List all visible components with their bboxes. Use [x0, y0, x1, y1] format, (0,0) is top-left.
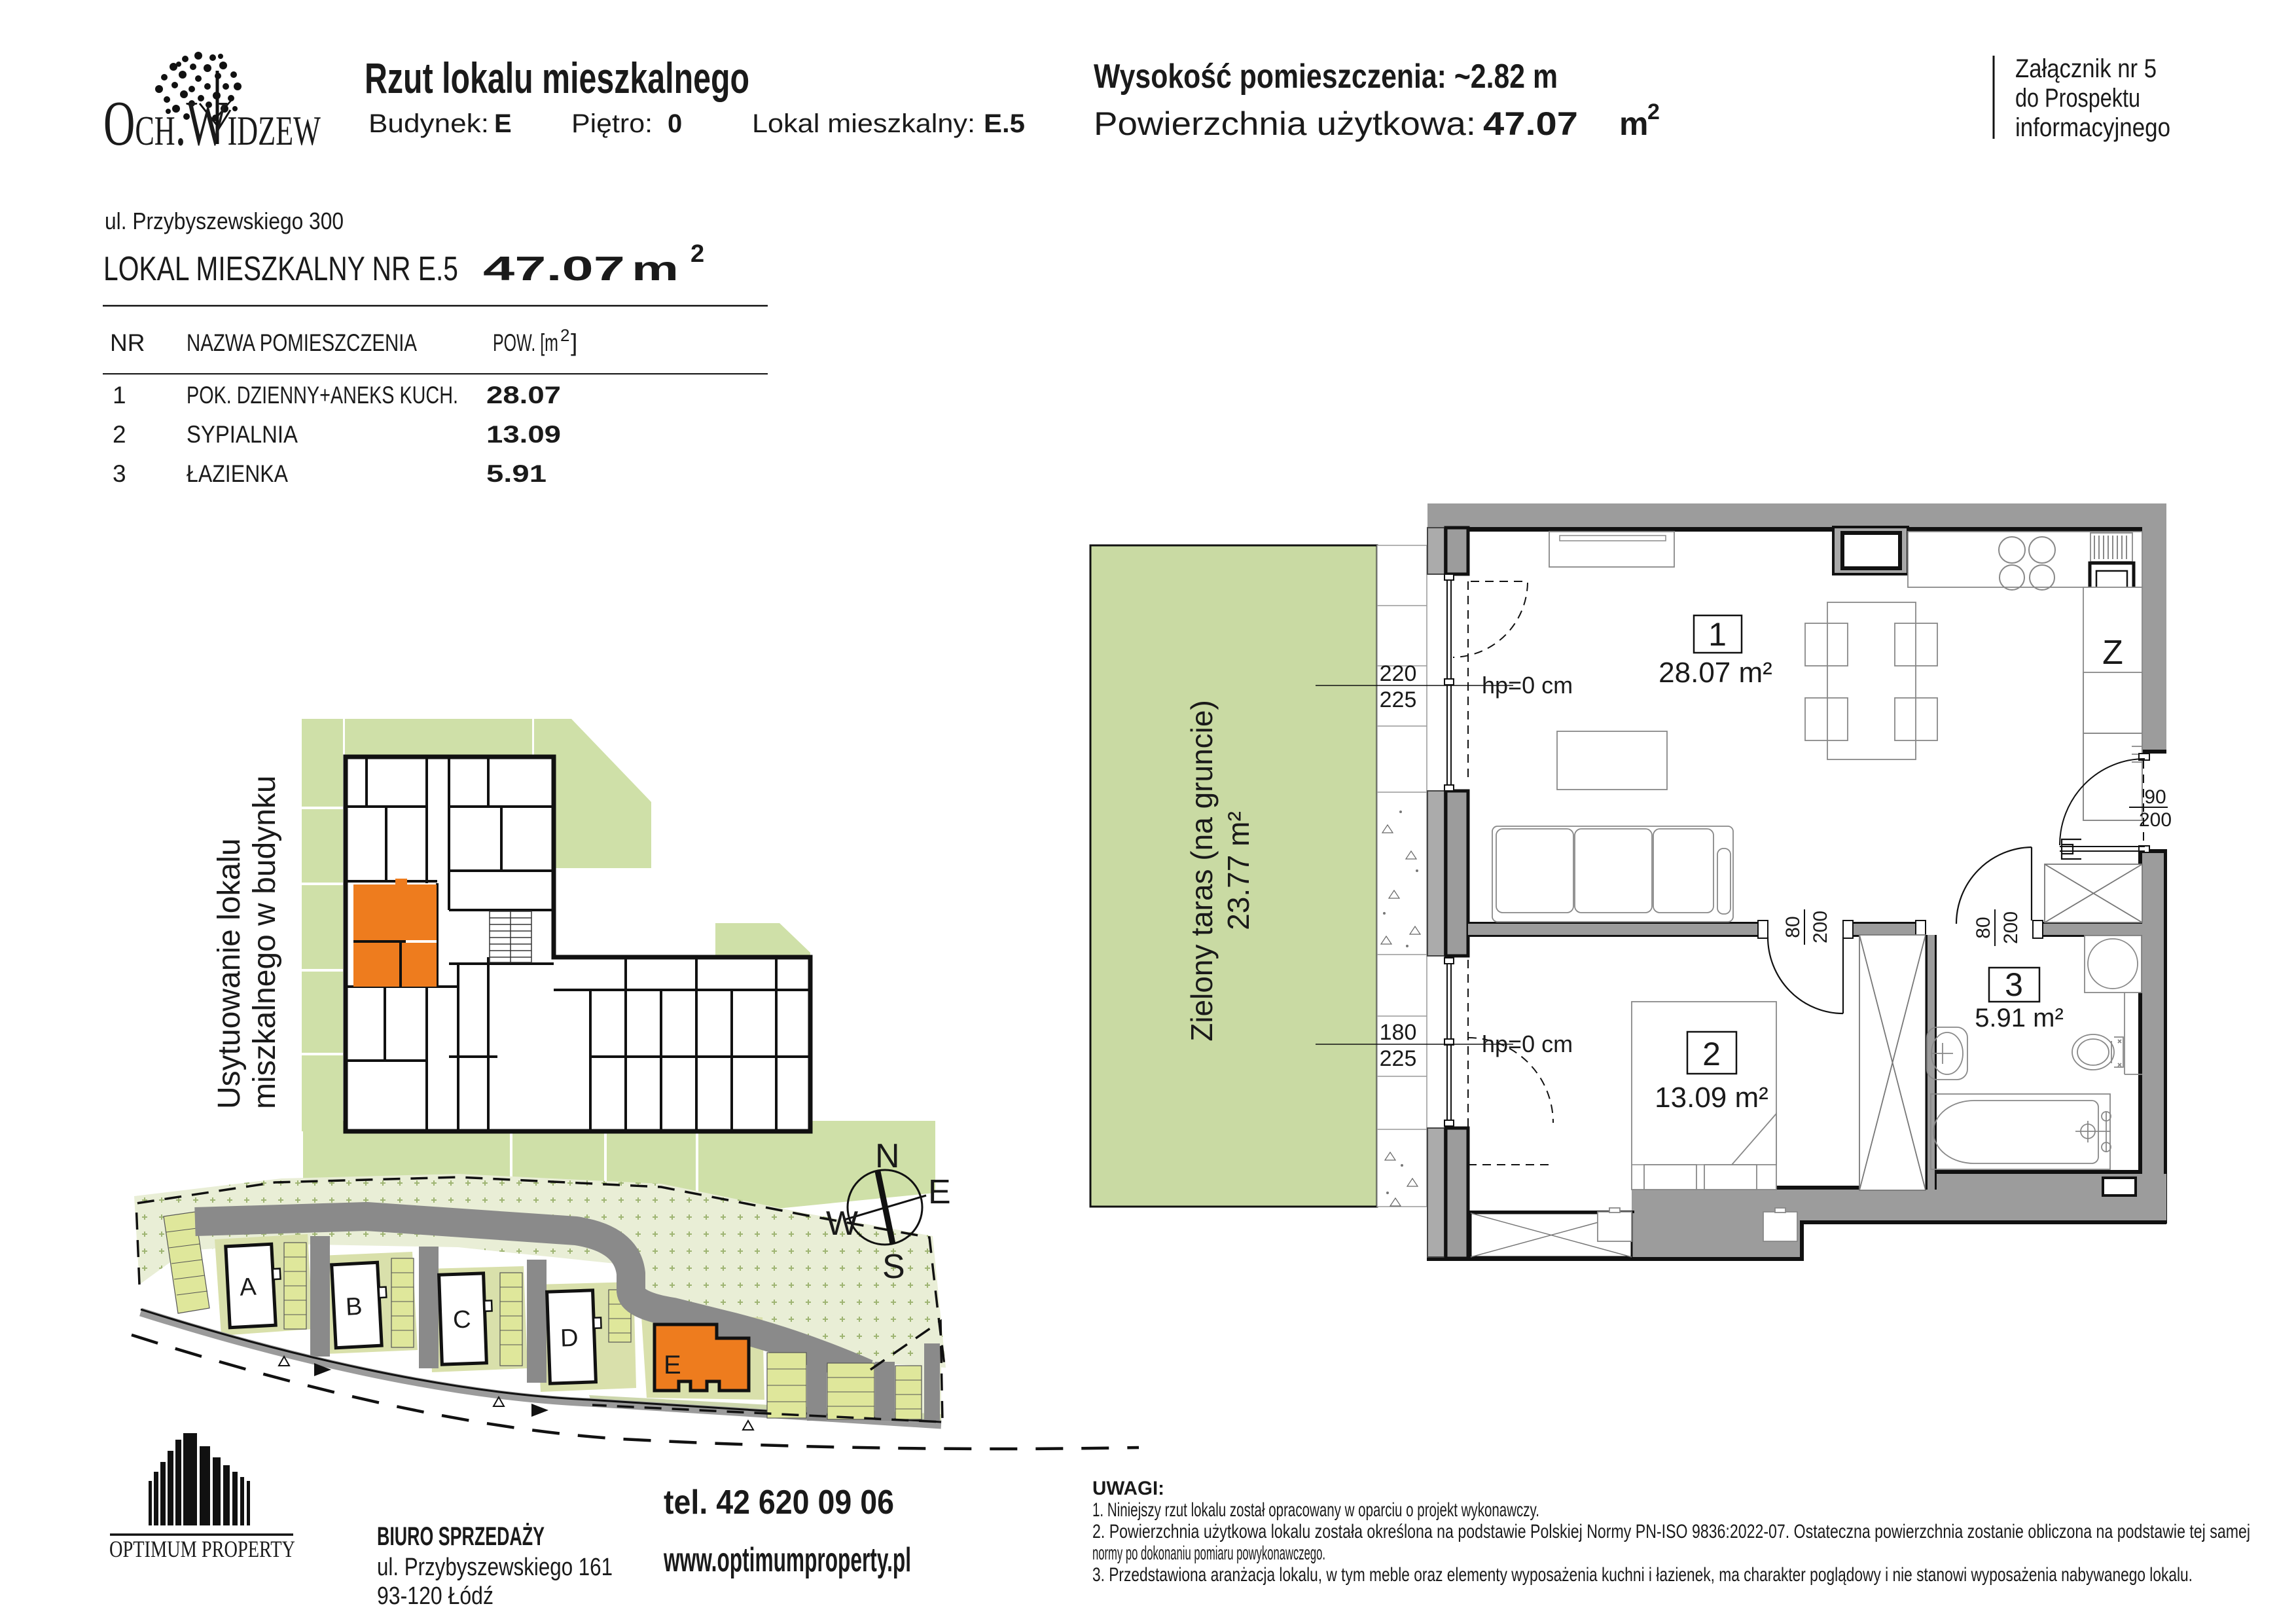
svg-text:ul. Przybyszewskiego 161: ul. Przybyszewskiego 161: [377, 1554, 613, 1581]
svg-text:1: 1: [113, 382, 126, 409]
svg-text:47.07: 47.07: [483, 250, 625, 288]
svg-text:Załącznik nr 5: Załącznik nr 5: [2015, 54, 2157, 83]
svg-text:Rzut lokalu mieszkalnego: Rzut lokalu mieszkalnego: [365, 54, 749, 102]
svg-text:Lokal mieszkalny:: Lokal mieszkalny:: [752, 109, 975, 138]
svg-text:www.optimumproperty.pl: www.optimumproperty.pl: [663, 1541, 911, 1579]
svg-text:Budynek:: Budynek:: [368, 109, 489, 138]
svg-text:LOKAL MIESZKALNY NR E.5: LOKAL MIESZKALNY NR E.5: [103, 250, 458, 288]
svg-text:m: m: [1619, 105, 1648, 142]
svg-text:2: 2: [1647, 100, 1660, 124]
svg-text:OPTIMUM PROPERTY: OPTIMUM PROPERTY: [109, 1536, 295, 1562]
svg-text:Powierzchnia użytkowa:: Powierzchnia użytkowa:: [1094, 105, 1476, 142]
svg-text:3: 3: [2005, 966, 2023, 1003]
svg-text:N: N: [875, 1137, 900, 1175]
svg-text:28.07 m²: 28.07 m²: [1659, 657, 1772, 689]
svg-text:normy po dokonaniu pomiaru pow: normy po dokonaniu pomiaru powykonawczeg…: [1092, 1542, 1325, 1564]
svg-text:3. Przedstawiona aranżacja lok: 3. Przedstawiona aranżacja lokalu, w tym…: [1092, 1564, 2193, 1586]
svg-text:informacyjnego: informacyjnego: [2015, 113, 2170, 142]
svg-text:2: 2: [1702, 1036, 1721, 1072]
svg-text:80: 80: [1973, 917, 1994, 938]
svg-text:Zielony taras (na gruncie): Zielony taras (na gruncie): [1185, 700, 1219, 1042]
svg-text:23.77 m²: 23.77 m²: [1221, 811, 1255, 930]
svg-text:m: m: [632, 250, 679, 288]
svg-text:C: C: [452, 1306, 471, 1334]
svg-text:93-120 Łódź: 93-120 Łódź: [377, 1582, 493, 1610]
svg-text:W: W: [826, 1205, 858, 1243]
svg-text:5.91: 5.91: [486, 460, 547, 487]
svg-text:47.07: 47.07: [1483, 105, 1578, 142]
svg-text:13.09: 13.09: [486, 421, 561, 448]
svg-text:2: 2: [691, 240, 704, 268]
svg-text:POW. [m: POW. [m: [493, 329, 558, 356]
svg-text:225: 225: [1380, 687, 1417, 712]
svg-text:ul. Przybyszewskiego 300: ul. Przybyszewskiego 300: [105, 208, 344, 234]
svg-text:E: E: [494, 109, 512, 138]
svg-text:E: E: [928, 1173, 951, 1211]
svg-text:200: 200: [2000, 911, 2022, 944]
svg-text:1: 1: [1708, 616, 1727, 653]
svg-text:28.07: 28.07: [486, 382, 561, 409]
svg-text:E.5: E.5: [984, 109, 1025, 138]
svg-text:Usytuowanie lokalu: Usytuowanie lokalu: [212, 838, 247, 1109]
svg-text:200: 200: [1810, 911, 1831, 943]
svg-text:220: 220: [1380, 661, 1417, 686]
svg-text:Piętro:: Piętro:: [571, 109, 653, 138]
svg-text:]: ]: [571, 329, 577, 356]
svg-text:200: 200: [2139, 809, 2172, 831]
svg-text:225: 225: [1380, 1046, 1417, 1071]
svg-text:2: 2: [560, 325, 569, 345]
svg-text:do Prospektu: do Prospektu: [2015, 84, 2140, 113]
svg-text:2: 2: [113, 421, 126, 448]
svg-text:180: 180: [1380, 1020, 1417, 1045]
svg-text:ŁAZIENKA: ŁAZIENKA: [187, 460, 288, 487]
svg-text:OCH.WIDZEW: OCH.WIDZEW: [103, 89, 321, 159]
svg-text:B: B: [345, 1293, 363, 1321]
svg-text:90: 90: [2144, 786, 2166, 808]
svg-text:13.09 m²: 13.09 m²: [1655, 1082, 1768, 1114]
svg-text:SYPIALNIA: SYPIALNIA: [187, 421, 298, 448]
svg-text:2. Powierzchnia użytkowa lokal: 2. Powierzchnia użytkowa lokalu została …: [1092, 1521, 2250, 1542]
svg-text:BIURO SPRZEDAŻY: BIURO SPRZEDAŻY: [377, 1522, 545, 1551]
svg-text:S: S: [882, 1248, 905, 1286]
svg-text:Wysokość pomieszczenia: ~2.82: Wysokość pomieszczenia: ~2.82 m: [1094, 58, 1558, 96]
svg-text:E: E: [664, 1351, 681, 1379]
svg-text:A: A: [239, 1273, 257, 1302]
svg-text:hp=0 cm: hp=0 cm: [1482, 672, 1573, 699]
svg-text:hp=0 cm: hp=0 cm: [1482, 1030, 1573, 1057]
svg-text:3: 3: [113, 460, 126, 487]
svg-text:POK. DZIENNY+ANEKS KUCH.: POK. DZIENNY+ANEKS KUCH.: [187, 382, 458, 409]
svg-text:D: D: [560, 1324, 579, 1353]
svg-text:0: 0: [668, 109, 682, 138]
svg-text:tel. 42 620 09 06: tel. 42 620 09 06: [664, 1484, 894, 1522]
svg-text:NAZWA POMIESZCZENIA: NAZWA POMIESZCZENIA: [187, 329, 417, 356]
svg-text:miszkalnego w budynku: miszkalnego w budynku: [247, 775, 282, 1109]
svg-text:1. Niniejszy rzut lokalu zosta: 1. Niniejszy rzut lokalu został opracowa…: [1092, 1499, 1539, 1521]
svg-text:80: 80: [1782, 916, 1804, 938]
svg-text:5.91 m²: 5.91 m²: [1975, 1004, 2064, 1032]
svg-text:Z: Z: [2102, 634, 2123, 672]
svg-text:NR: NR: [110, 329, 145, 356]
svg-text:UWAGI:: UWAGI:: [1092, 1478, 1164, 1499]
